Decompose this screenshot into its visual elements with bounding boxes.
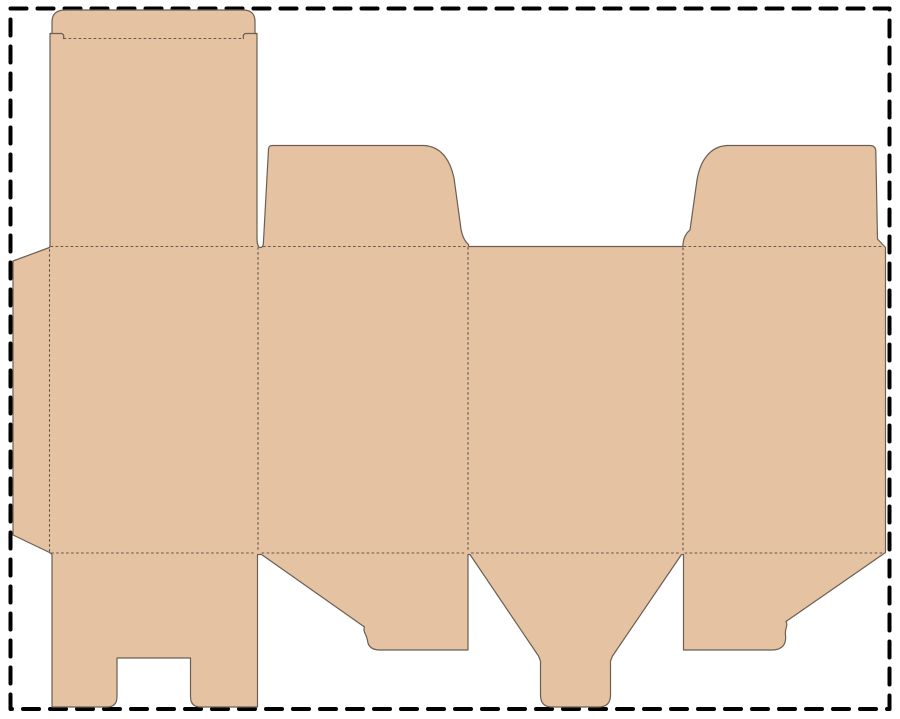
dieline-page [0, 0, 900, 719]
dieline-drawing [0, 0, 900, 719]
